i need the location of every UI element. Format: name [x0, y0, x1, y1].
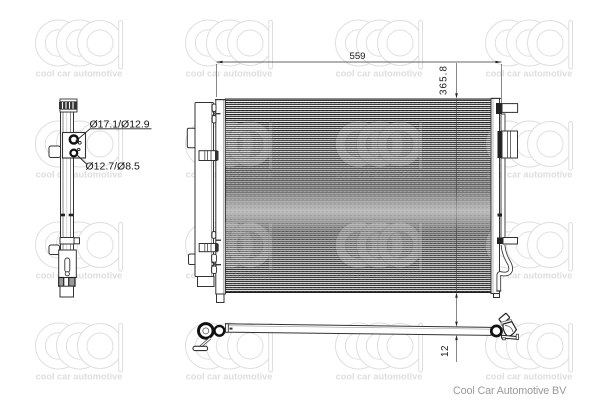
- svg-text:559: 559: [349, 51, 365, 62]
- svg-text:12: 12: [440, 345, 451, 357]
- svg-text:Cool Car Automotive BV: Cool Car Automotive BV: [453, 385, 567, 397]
- svg-text:Ø12.7/Ø8.5: Ø12.7/Ø8.5: [86, 161, 140, 173]
- svg-text:Ø17.1/Ø12.9: Ø17.1/Ø12.9: [90, 119, 150, 131]
- svg-text:365.8: 365.8: [439, 65, 450, 95]
